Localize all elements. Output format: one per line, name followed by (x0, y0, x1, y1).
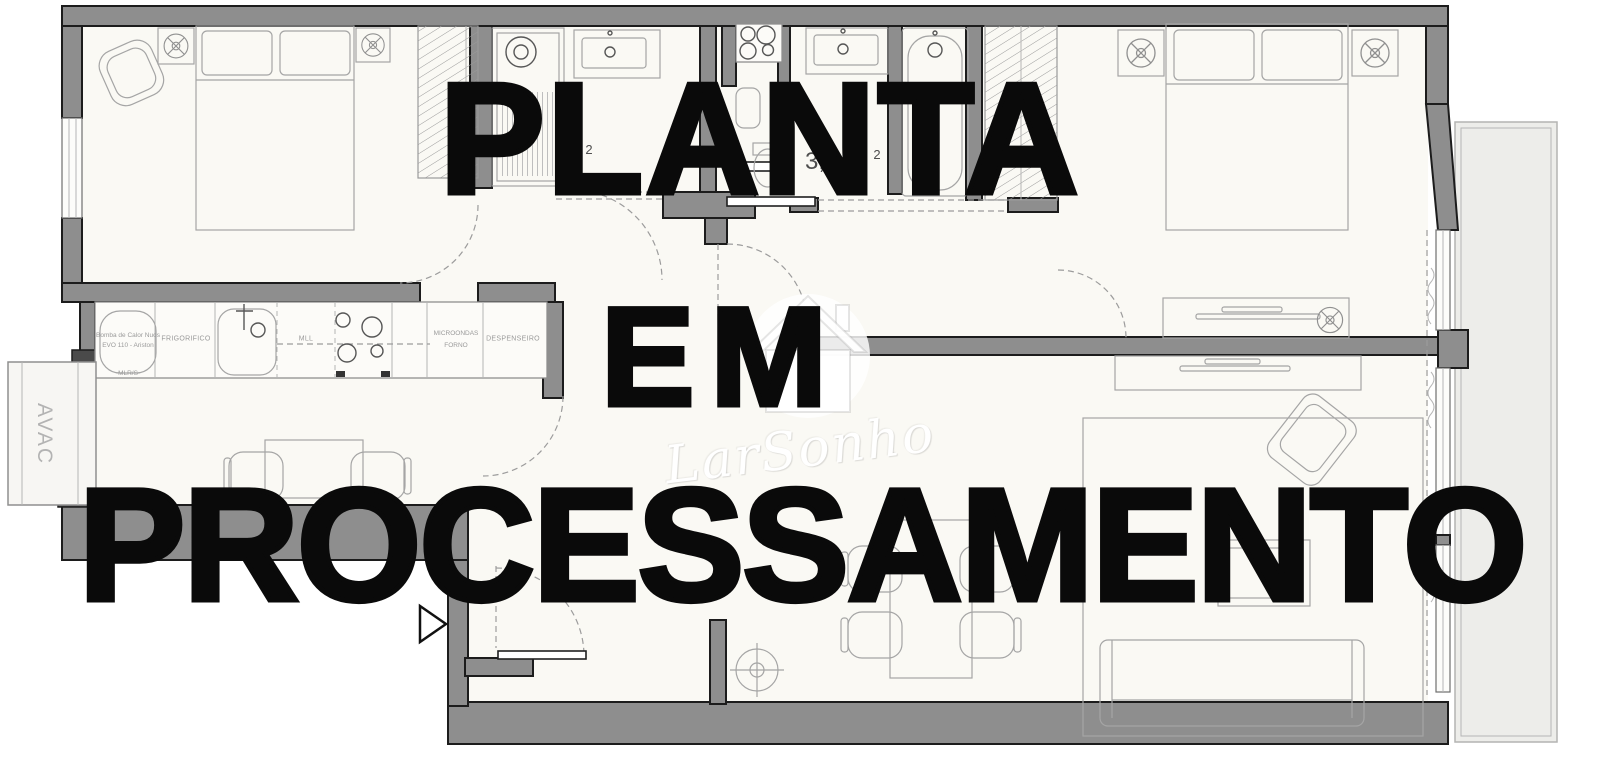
floor-plan-page: AVAC Bomba de Calor Nuos EVO 110 - Arist… (0, 0, 1600, 778)
watermark-line-2: EM (0, 287, 1444, 427)
watermark-line-3: PROCESSAMENTO (0, 465, 1600, 625)
watermark-line-1: PLANTA (0, 60, 1520, 218)
